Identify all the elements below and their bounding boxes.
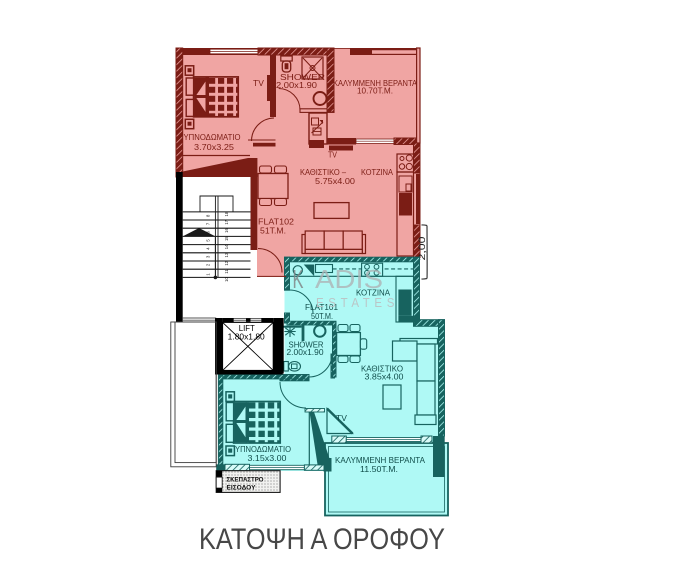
svg-text:50Τ.Μ.: 50Τ.Μ. — [311, 311, 333, 321]
svg-text:ΣΚΕΠΑΣΤΡΟ: ΣΚΕΠΑΣΤΡΟ — [227, 477, 264, 484]
svg-text:13: 13 — [224, 252, 229, 257]
svg-text:ΚΟΤΖΙΝΑ: ΚΟΤΖΙΝΑ — [361, 167, 393, 177]
svg-text:10: 10 — [224, 277, 229, 282]
svg-text:2.00x1.90: 2.00x1.90 — [276, 80, 317, 90]
svg-text:17: 17 — [224, 219, 229, 224]
svg-text:12: 12 — [224, 260, 229, 265]
svg-text:1.80x1.80: 1.80x1.80 — [228, 333, 266, 342]
svg-text:TV: TV — [336, 413, 347, 423]
svg-text:10.70Τ.Μ.: 10.70Τ.Μ. — [357, 86, 393, 96]
svg-text:11: 11 — [224, 269, 229, 274]
svg-text:18: 18 — [224, 211, 229, 216]
svg-text:3.85x4.00: 3.85x4.00 — [365, 372, 404, 382]
svg-text:3.15x3.00: 3.15x3.00 — [248, 453, 287, 463]
svg-text:ADIS: ADIS — [315, 264, 383, 294]
svg-text:TV: TV — [328, 151, 337, 160]
svg-text:ΚΑΤΟΨΗ Α ΟΡΟΦΟΥ: ΚΑΤΟΨΗ Α ΟΡΟΦΟΥ — [199, 523, 445, 556]
svg-text:TV: TV — [253, 78, 264, 88]
svg-text:16: 16 — [224, 228, 229, 233]
svg-text:ΥΠΝΟΔΩΜΑΤΙΟ: ΥΠΝΟΔΩΜΑΤΙΟ — [184, 132, 241, 142]
svg-text:11.50Τ.Μ.: 11.50Τ.Μ. — [360, 464, 398, 474]
svg-text:ESTATES: ESTATES — [316, 296, 399, 310]
svg-text:ΕΙΣΟΔΟΥ: ΕΙΣΟΔΟΥ — [227, 485, 257, 492]
svg-text:51Τ.Μ.: 51Τ.Μ. — [260, 226, 286, 236]
svg-text:15: 15 — [224, 236, 229, 241]
svg-text:2.00x1.90: 2.00x1.90 — [287, 347, 324, 357]
svg-text:K: K — [293, 264, 304, 294]
svg-text:14: 14 — [224, 244, 229, 249]
svg-text:3.70x3.25: 3.70x3.25 — [194, 142, 234, 152]
svg-text:5.75x4.00: 5.75x4.00 — [315, 176, 355, 186]
